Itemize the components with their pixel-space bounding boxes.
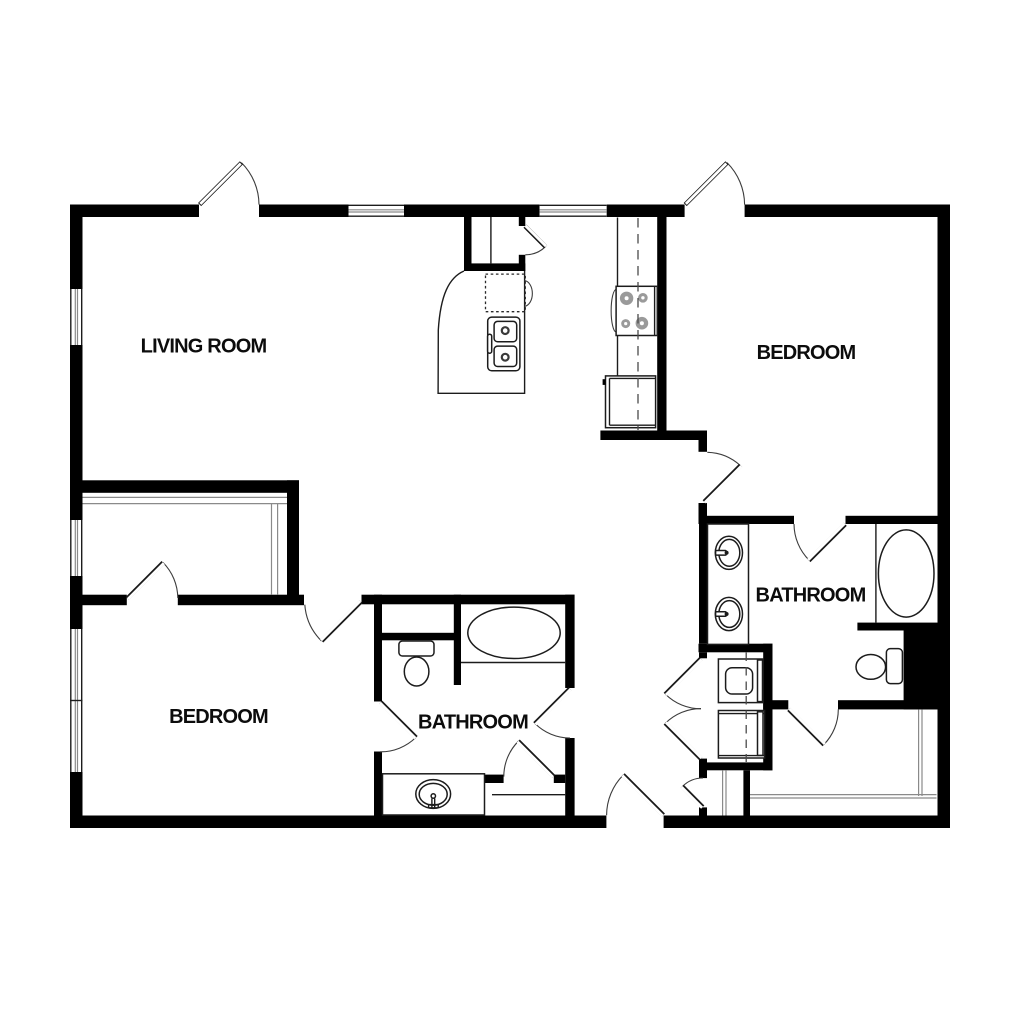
svg-text:BEDROOM: BEDROOM — [169, 706, 268, 728]
svg-text:LIVING ROOM: LIVING ROOM — [141, 336, 267, 358]
svg-text:BATHROOM: BATHROOM — [418, 712, 528, 734]
svg-text:BATHROOM: BATHROOM — [756, 585, 866, 607]
svg-text:BEDROOM: BEDROOM — [757, 342, 856, 364]
